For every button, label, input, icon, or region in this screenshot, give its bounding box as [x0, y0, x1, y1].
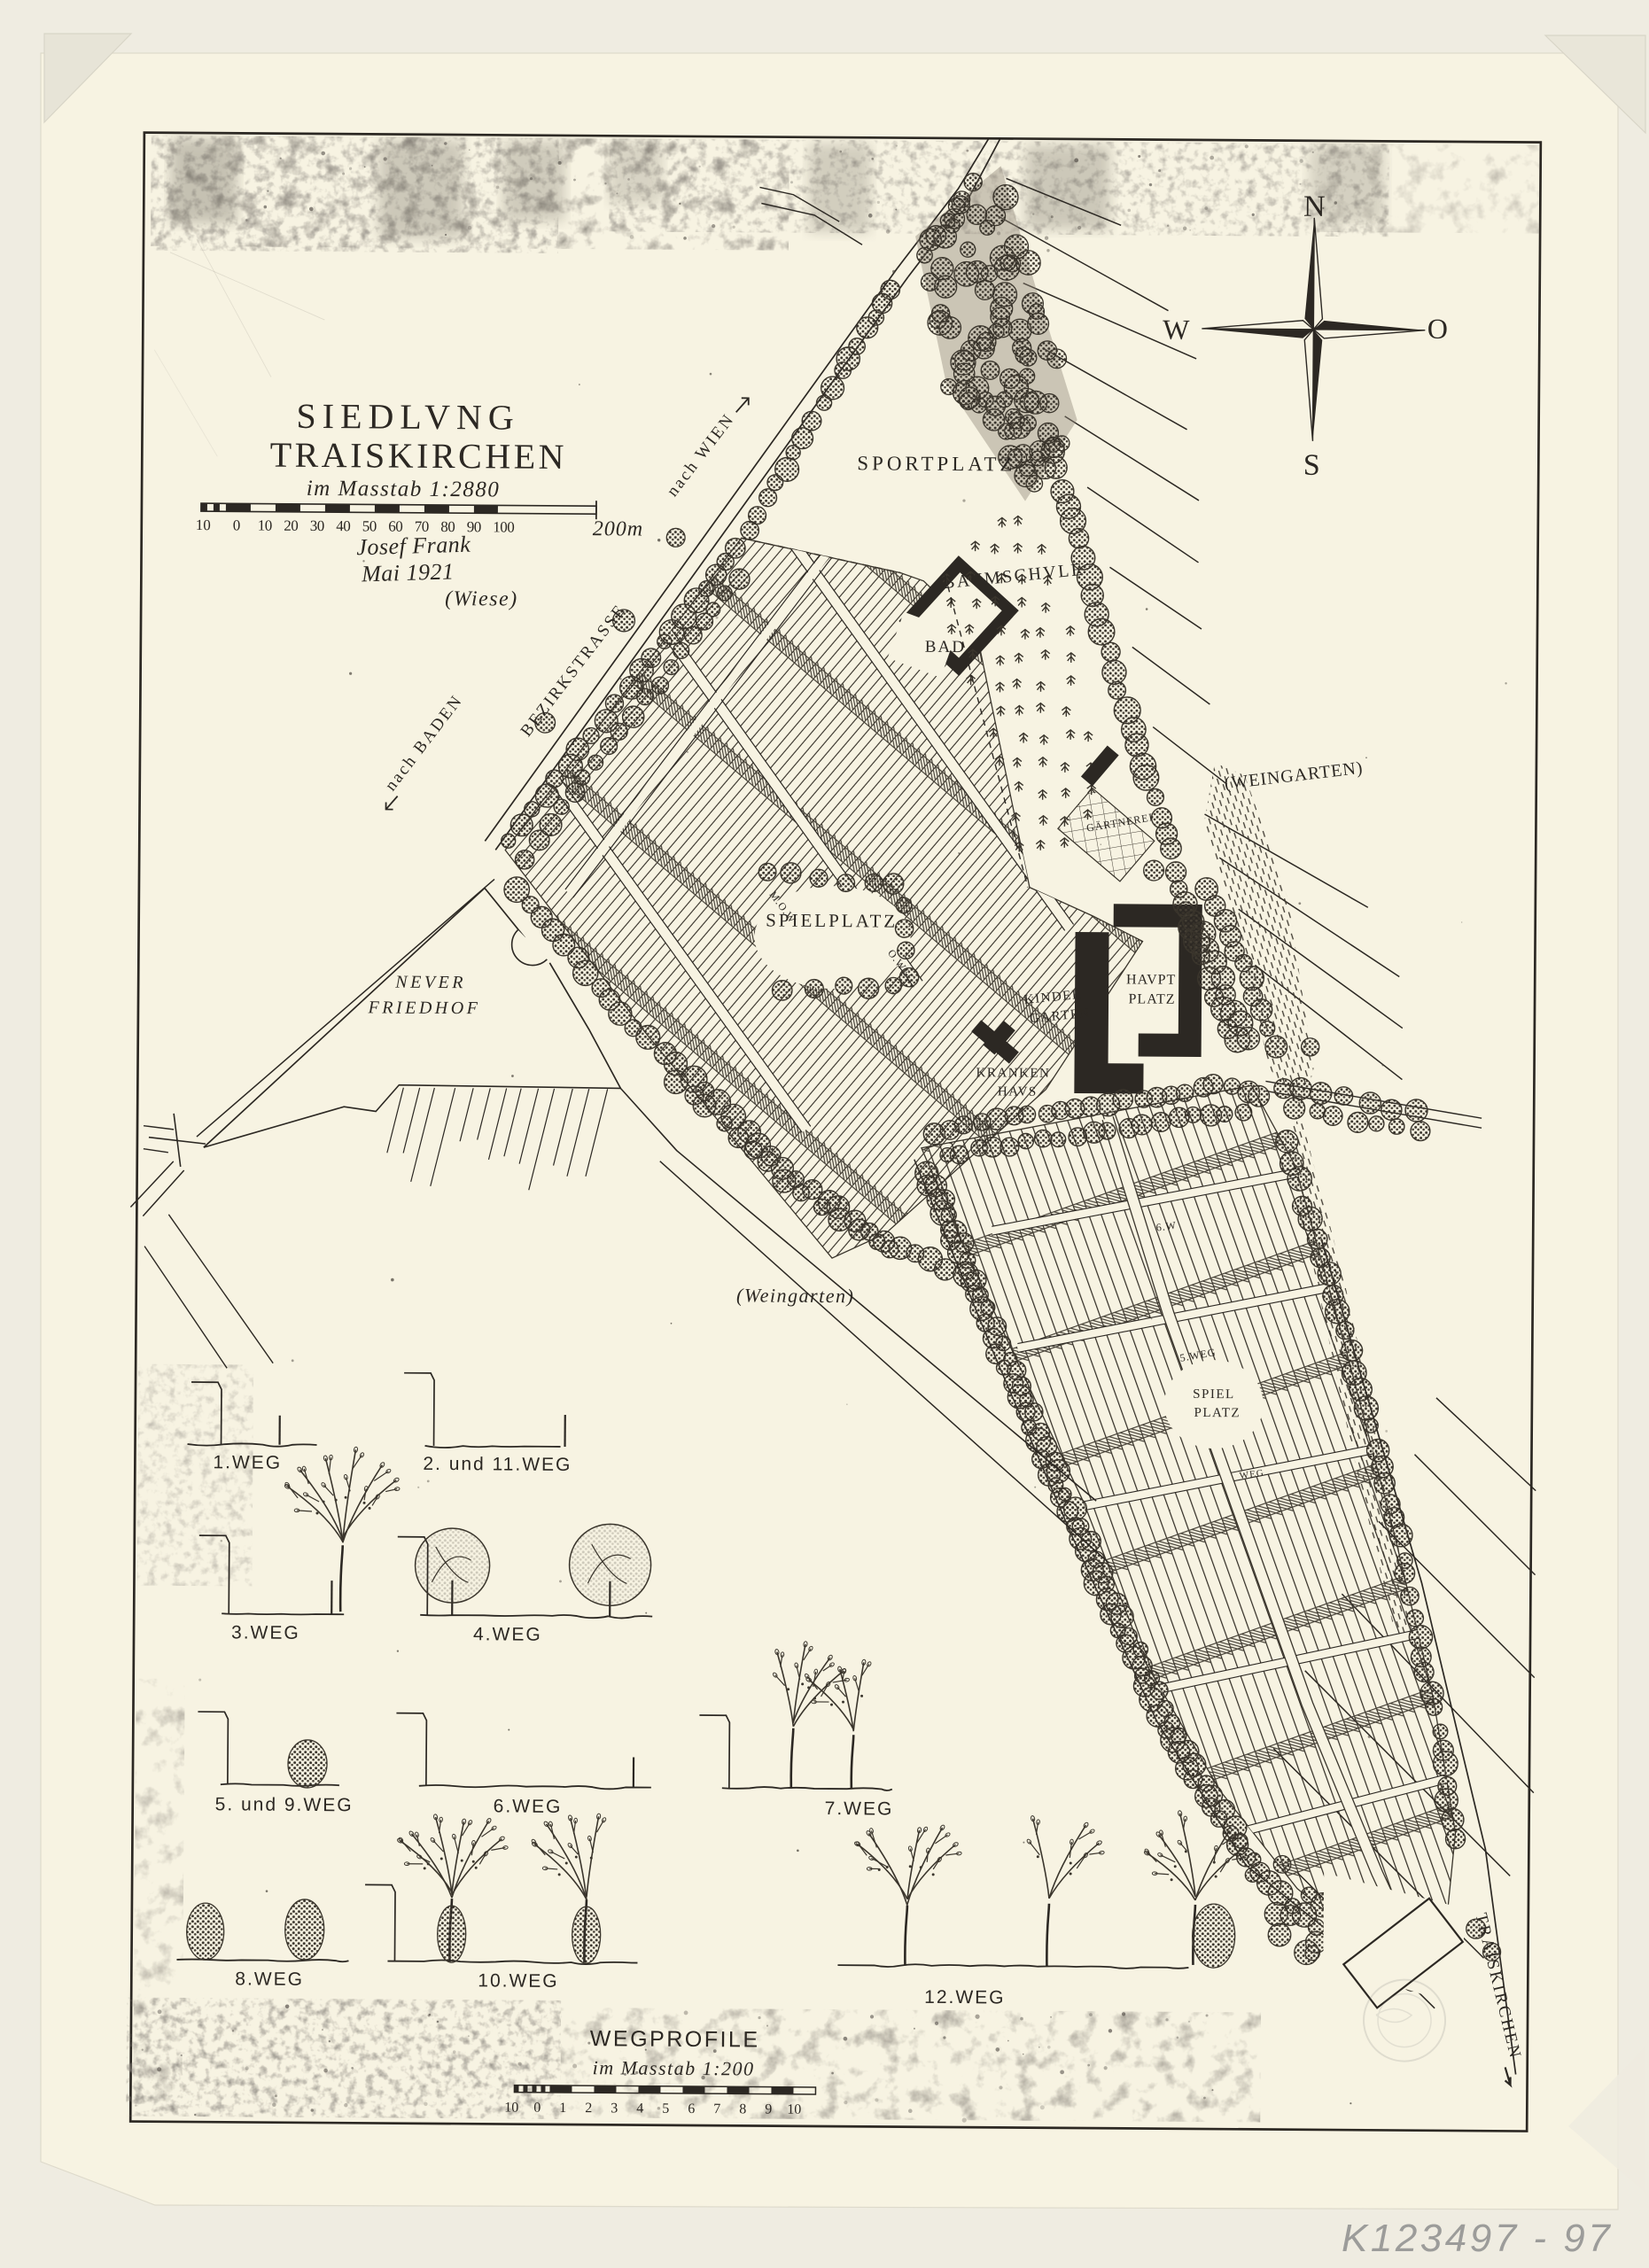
svg-text:NEVER: NEVER: [394, 973, 466, 993]
svg-text:3.WEG: 3.WEG: [231, 1622, 300, 1643]
svg-text:FRIEDHOF: FRIEDHOF: [367, 998, 480, 1018]
svg-text:3: 3: [611, 2101, 618, 2116]
svg-text:SIEDLVNG: SIEDLVNG: [296, 396, 520, 438]
svg-text:10: 10: [504, 2101, 518, 2116]
svg-text:5. und 9.WEG: 5. und 9.WEG: [215, 1794, 354, 1815]
svg-text:6.WEG: 6.WEG: [494, 1796, 563, 1817]
svg-text:20: 20: [284, 517, 298, 534]
svg-text:BAD: BAD: [925, 638, 966, 656]
svg-text:5: 5: [662, 2101, 669, 2117]
svg-text:0: 0: [533, 2101, 541, 2116]
svg-text:im Masstab 1:200: im Masstab 1:200: [593, 2056, 755, 2079]
svg-text:60: 60: [388, 518, 402, 535]
svg-text:7: 7: [713, 2101, 720, 2117]
svg-text:KRANKEN: KRANKEN: [976, 1066, 1051, 1081]
svg-text:SPIEL: SPIEL: [1193, 1387, 1235, 1402]
svg-text:W: W: [1163, 314, 1190, 346]
svg-text:Mai 1921: Mai 1921: [361, 558, 455, 586]
svg-text:S: S: [1303, 449, 1320, 482]
svg-text:0: 0: [233, 517, 241, 533]
svg-text:8.WEG: 8.WEG: [235, 1969, 304, 1990]
svg-text:im Masstab 1:2880: im Masstab 1:2880: [307, 477, 501, 502]
svg-text:50: 50: [362, 517, 377, 534]
svg-text:PLATZ: PLATZ: [1194, 1406, 1241, 1420]
svg-text:10: 10: [196, 517, 211, 533]
svg-text:100: 100: [493, 518, 514, 535]
svg-text:O: O: [1427, 313, 1448, 345]
svg-text:2. und 11.WEG: 2. und 11.WEG: [423, 1454, 572, 1475]
svg-text:10.WEG: 10.WEG: [478, 1970, 559, 1992]
svg-text:Josef Frank: Josef Frank: [356, 532, 471, 561]
svg-text:40: 40: [336, 517, 350, 534]
svg-text:10: 10: [258, 517, 272, 534]
svg-text:(Weingarten): (Weingarten): [736, 1284, 854, 1307]
svg-text:2: 2: [585, 2101, 592, 2116]
svg-text:K123497 - 97: K123497 - 97: [1342, 2217, 1613, 2260]
svg-text:8: 8: [739, 2101, 746, 2117]
svg-text:SPORTPLATZ: SPORTPLATZ: [857, 452, 1015, 475]
svg-text:12.WEG: 12.WEG: [924, 1987, 1006, 2008]
svg-text:7.WEG: 7.WEG: [825, 1798, 894, 1820]
svg-text:N: N: [1303, 190, 1326, 223]
svg-text:10: 10: [787, 2102, 801, 2117]
svg-text:4: 4: [636, 2101, 643, 2117]
svg-text:200m: 200m: [593, 517, 644, 540]
svg-text:4.WEG: 4.WEG: [473, 1624, 542, 1645]
svg-text:1.WEG: 1.WEG: [213, 1452, 282, 1473]
svg-text:6: 6: [688, 2101, 695, 2117]
svg-text:TRAISKIRCHEN: TRAISKIRCHEN: [270, 435, 568, 477]
svg-text:1: 1: [559, 2101, 566, 2116]
svg-text:HAVPT: HAVPT: [1126, 972, 1176, 987]
svg-text:9: 9: [765, 2102, 772, 2117]
svg-text:30: 30: [310, 517, 324, 534]
svg-text:HAVS: HAVS: [998, 1084, 1038, 1099]
svg-text:(Wiese): (Wiese): [445, 587, 518, 611]
svg-text:WEGPROFILE: WEGPROFILE: [590, 2026, 760, 2052]
svg-text:PLATZ: PLATZ: [1129, 991, 1176, 1006]
